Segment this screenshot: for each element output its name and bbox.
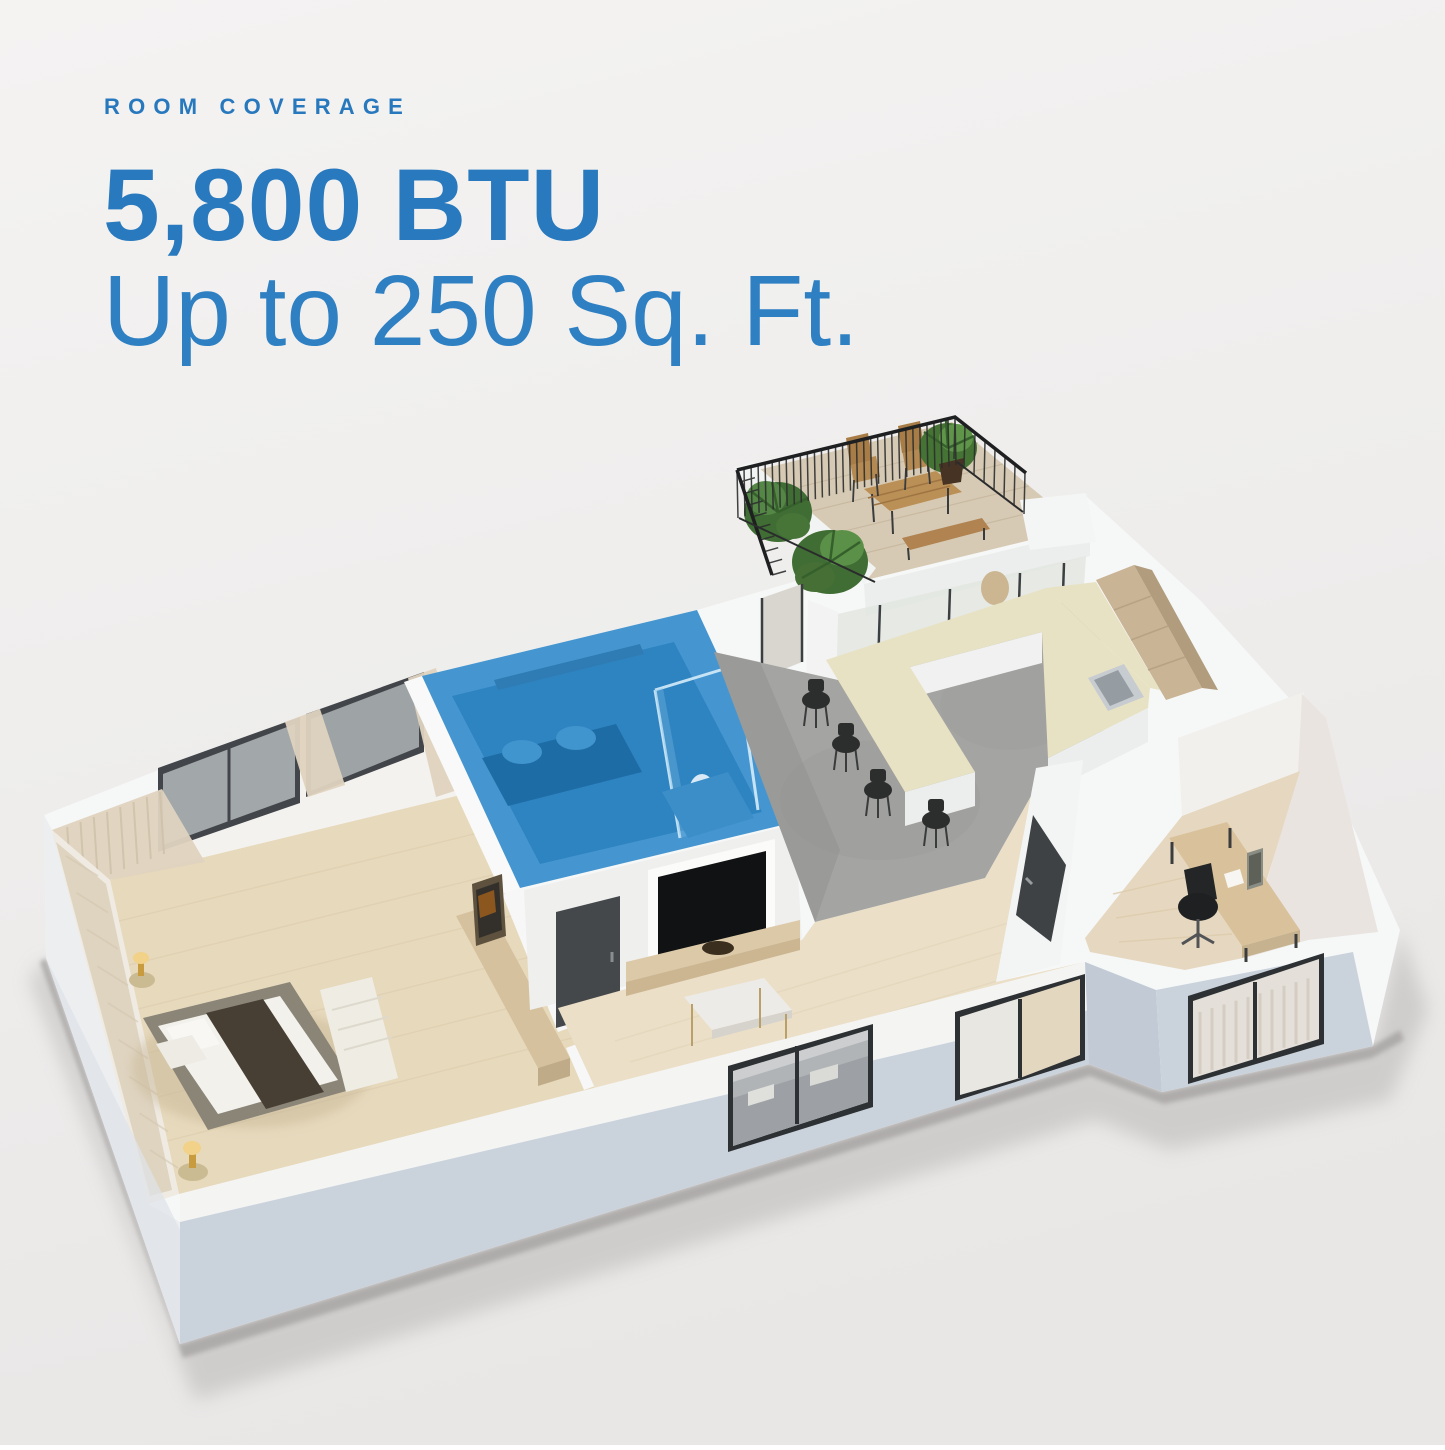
svg-text:ROOM COVERAGE: ROOM COVERAGE [104,94,411,119]
svg-text:Up to 250 Sq. Ft.: Up to 250 Sq. Ft. [103,255,859,367]
svg-text:5,800 BTU: 5,800 BTU [103,148,605,262]
